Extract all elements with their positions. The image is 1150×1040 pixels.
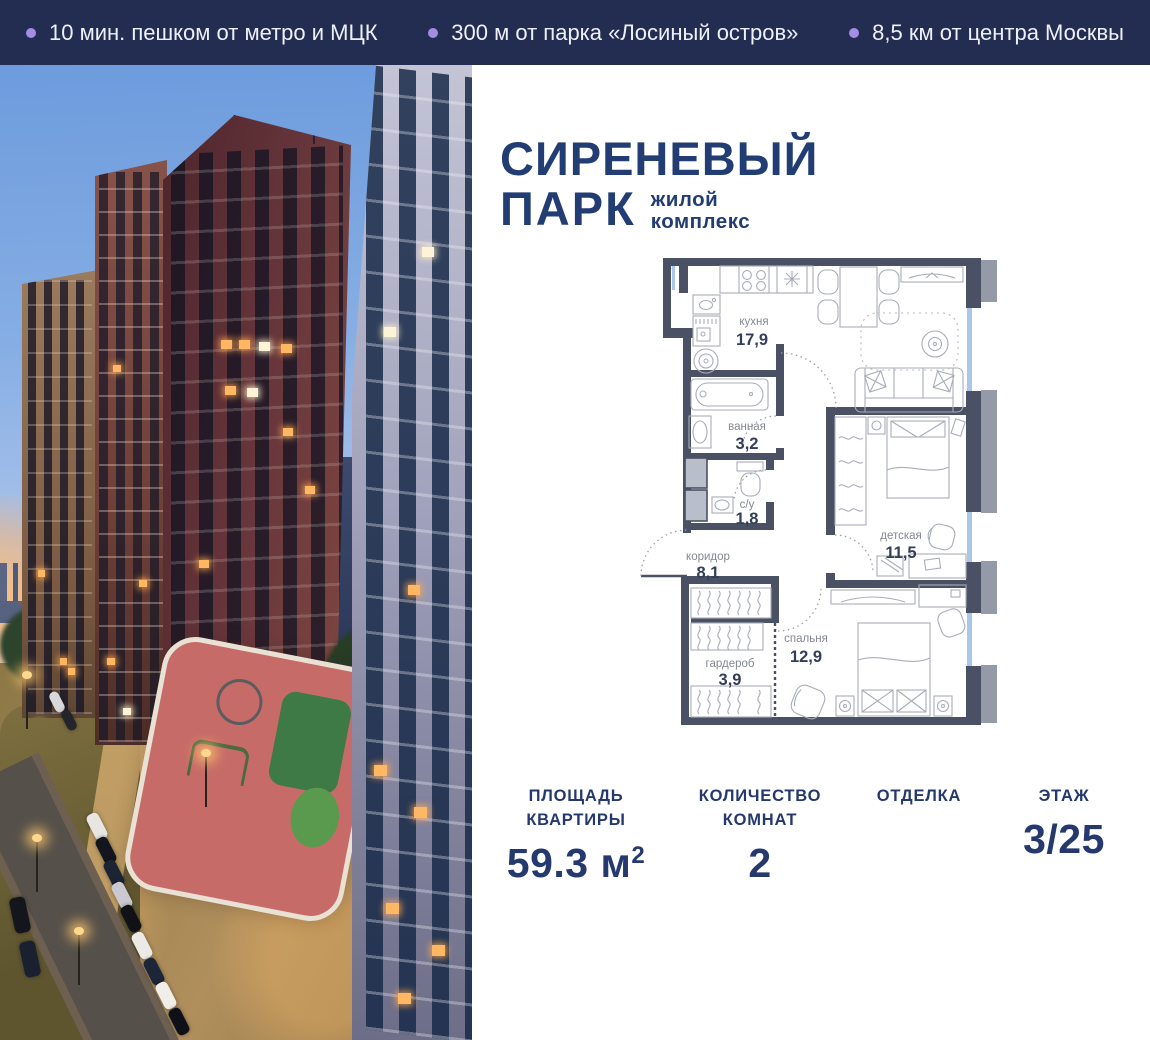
banner-text: 8,5 км от центра Москвы — [872, 20, 1124, 46]
stat-rooms-value: 2 — [670, 840, 850, 887]
street-lamp — [78, 933, 80, 985]
room-kitchen-area: 17,9 — [736, 331, 768, 349]
complex-logo: СИРЕНЕВЫЙ ПАРК жилой комплекс — [500, 134, 818, 234]
stat-rooms: КОЛИЧЕСТВО КОМНАТ 2 — [670, 784, 850, 887]
banner-text: 10 мин. пешком от метро и МЦК — [49, 20, 378, 46]
stat-finishing: ОТДЕЛКА — [839, 784, 999, 816]
apartment-stats: ПЛОЩАДЬ КВАРТИРЫ 59.3 м2 КОЛИЧЕСТВО КОМН… — [0, 784, 1150, 894]
room-children-area: 11,5 — [885, 544, 916, 562]
room-children-label: детская — [880, 530, 922, 542]
room-corridor-label: коридор — [686, 551, 730, 563]
logo-title-line2: ПАРК — [500, 184, 636, 234]
building-mid — [95, 160, 167, 745]
banner-text: 300 м от парка «Лосиный остров» — [451, 20, 798, 46]
stat-floor: ЭТАЖ 3/25 — [984, 784, 1144, 863]
top-info-banner: 10 мин. пешком от метро и МЦК 300 м от п… — [0, 0, 1150, 65]
room-wc-area: 1,8 — [736, 510, 759, 528]
banner-item: 300 м от парка «Лосиный остров» — [428, 20, 798, 46]
play-structure — [267, 689, 354, 796]
banner-item: 10 мин. пешком от метро и МЦК — [26, 20, 378, 46]
bullet-icon — [26, 28, 36, 38]
real-estate-flyer: 10 мин. пешком от метро и МЦК 300 м от п… — [0, 0, 1150, 1040]
room-bedroom-area: 12,9 — [790, 648, 822, 666]
room-bedroom-label: спальня — [784, 633, 828, 645]
building-tan — [22, 270, 98, 718]
room-bathroom-area: 3,2 — [736, 435, 759, 453]
logo-subtitle: жилой комплекс — [651, 189, 750, 233]
room-bathroom-label: ванная — [728, 421, 766, 433]
climbing-web — [212, 675, 266, 729]
stat-area: ПЛОЩАДЬ КВАРТИРЫ 59.3 м2 — [486, 784, 666, 887]
room-wardrobe-label: гардероб — [706, 658, 755, 670]
room-corridor-area: 8,1 — [697, 564, 720, 582]
apartment-floor-plan: кухня 17,9 ванная 3,2 с/у 1,8 коридор 8,… — [618, 258, 998, 727]
street-lamp — [26, 677, 28, 729]
stat-area-value: 59.3 м2 — [486, 840, 666, 887]
banner-item: 8,5 км от центра Москвы — [849, 20, 1124, 46]
bullet-icon — [849, 28, 859, 38]
room-kitchen-label: кухня — [739, 316, 768, 328]
vent-shafts — [685, 458, 707, 521]
stat-floor-value: 3/25 — [984, 816, 1144, 863]
swing-frame — [186, 738, 250, 786]
room-wardrobe-area: 3,9 — [719, 671, 742, 689]
logo-title-line1: СИРЕНЕВЫЙ — [500, 134, 818, 184]
bullet-icon — [428, 28, 438, 38]
door-arcs — [641, 353, 873, 631]
